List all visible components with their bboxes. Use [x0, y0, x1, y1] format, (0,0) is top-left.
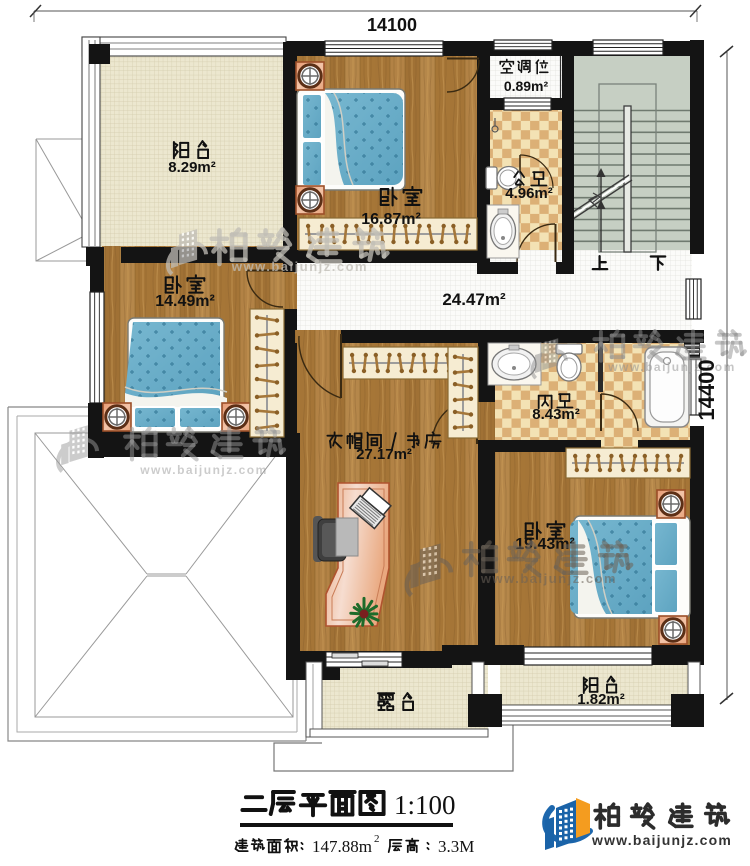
- svg-text:0.89m²: 0.89m²: [504, 78, 549, 94]
- svg-text:8.29m²: 8.29m²: [168, 159, 216, 176]
- svg-text:27.17m²: 27.17m²: [356, 446, 412, 463]
- svg-text:14.49m²: 14.49m²: [155, 293, 215, 310]
- svg-text:147.88m: 147.88m: [312, 837, 372, 856]
- svg-text:14100: 14100: [367, 15, 417, 35]
- svg-text:8.43m²: 8.43m²: [532, 406, 580, 423]
- svg-text:1:100: 1:100: [394, 790, 456, 820]
- svg-text:www.baijunjz.com: www.baijunjz.com: [591, 832, 732, 848]
- svg-text:16.87m²: 16.87m²: [361, 211, 421, 228]
- svg-text:2: 2: [374, 833, 380, 845]
- svg-text:1.82m²: 1.82m²: [577, 691, 625, 708]
- svg-text:24.47m²: 24.47m²: [442, 290, 506, 309]
- svg-text:www.baijunjz.com: www.baijunjz.com: [480, 571, 617, 586]
- svg-text:14400: 14400: [694, 359, 719, 420]
- svg-text:4.96m²: 4.96m²: [505, 185, 553, 202]
- svg-text:www.baijunjz.com: www.baijunjz.com: [139, 463, 268, 477]
- svg-text:www.baijunjz.com: www.baijunjz.com: [231, 259, 368, 274]
- svg-text:3.3M: 3.3M: [438, 837, 474, 856]
